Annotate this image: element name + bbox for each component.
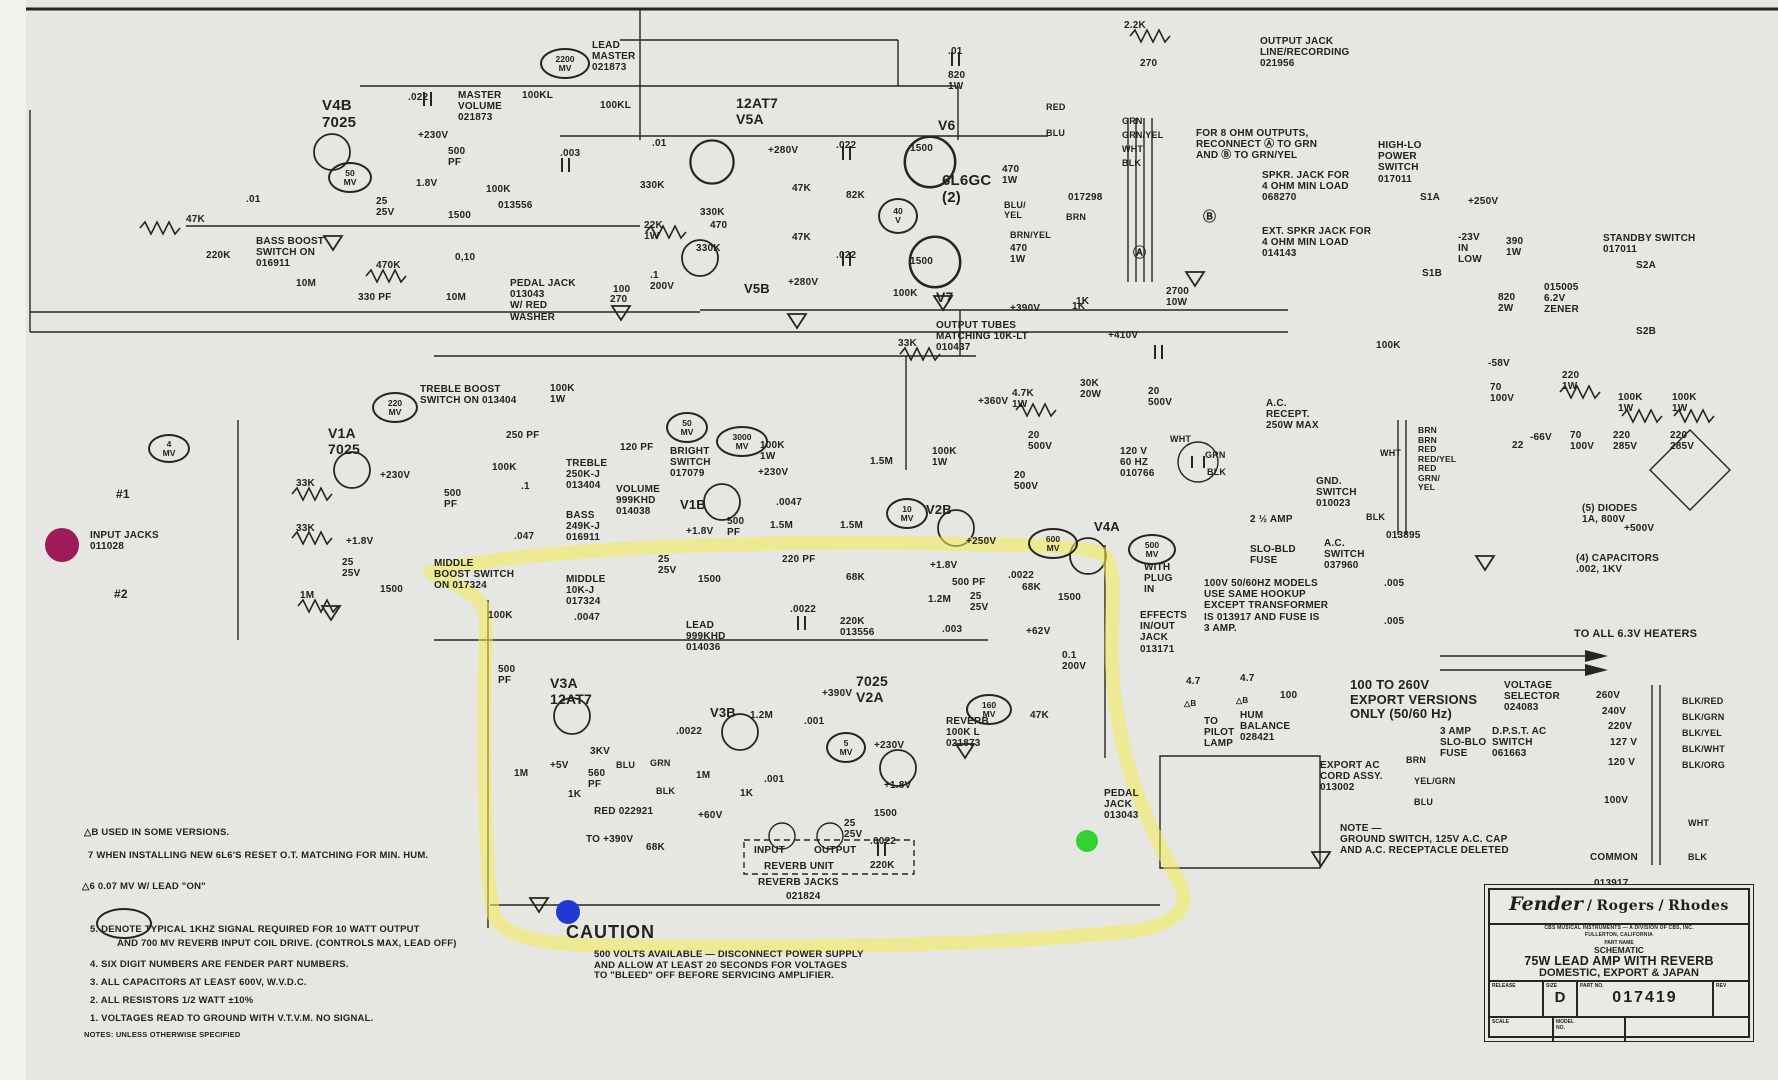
schematic-label: 220V	[1608, 721, 1632, 732]
fender-logo: Fender	[1509, 893, 1583, 915]
schematic-label: 1.2M	[928, 594, 951, 605]
schematic-label: 220K 013556	[840, 616, 875, 638]
schematic-label: BLK/WHT	[1682, 744, 1725, 754]
schematic-label: .005	[1384, 616, 1404, 627]
schematic-label: 013895	[1386, 530, 1421, 541]
schematic-label: 2 ½ AMP	[1250, 514, 1293, 525]
schematic-label: SPKR. JACK FOR 4 OHM MIN LOAD 068270	[1262, 170, 1349, 204]
schematic-label: 7025 V2A	[856, 674, 888, 705]
schematic-label: 33K	[296, 478, 315, 489]
schematic-label: 470 1W	[1002, 164, 1019, 186]
schematic-label: SLO-BLD FUSE	[1250, 544, 1296, 566]
schematic-label: 120 PF	[620, 442, 653, 453]
schematic-label: V4A	[1094, 520, 1120, 535]
schematic-label: 330K	[640, 180, 665, 191]
schematic-label: .0022	[790, 604, 816, 615]
mv-callout: 5 MV	[826, 732, 866, 763]
schematic-label: BRN BRN RED RED/YEL RED GRN/ YEL	[1418, 426, 1456, 493]
schematic-label: 220K	[206, 250, 231, 261]
mv-callout: 3000 MV	[716, 426, 768, 457]
schematic-label: S2B	[1636, 326, 1656, 337]
schematic-label: STANDBY SWITCH 017011	[1603, 233, 1695, 255]
maroon-dot-marker	[45, 528, 79, 562]
schematic-label: 47K	[792, 232, 811, 243]
schematic-label: 470K	[376, 260, 401, 271]
schematic-label: 47K	[1030, 710, 1049, 721]
schematic-label: BRN	[1066, 212, 1086, 222]
schematic-label: 100	[1280, 690, 1297, 701]
schematic-label: 500 PF	[952, 577, 985, 588]
schematic-label: TREBLE BOOST SWITCH ON 013404	[420, 384, 517, 406]
schematic-label: +390V	[1010, 303, 1040, 314]
schematic-label: +1.8V	[346, 536, 373, 547]
mv-callout: 10 MV	[886, 498, 928, 529]
schematic-label: 0.1 200V	[1062, 650, 1086, 672]
note-line: △B USED IN SOME VERSIONS.	[84, 828, 229, 839]
mv-callout: 50 MV	[328, 162, 372, 193]
schematic-label: 33K	[898, 338, 917, 349]
schematic-label: 260V	[1596, 690, 1620, 701]
schematic-label: 12AT7 V5A	[736, 96, 778, 127]
schematic-label: 120 V	[1608, 757, 1635, 768]
schematic-label: .0047	[574, 612, 600, 623]
schematic-label: MIDDLE 10K-J 017324	[566, 574, 606, 608]
schematic-label: FOR 8 OHM OUTPUTS, RECONNECT Ⓐ TO GRN AN…	[1196, 128, 1317, 162]
schematic-label: .1 200V	[650, 270, 674, 292]
schematic-label: #2	[114, 588, 128, 601]
schematic-label: A.C. SWITCH 037960	[1324, 538, 1365, 572]
schematic-label: PEDAL JACK 013043	[1104, 788, 1139, 822]
schematic-label: +410V	[1108, 330, 1138, 341]
schematic-label: 820 1W	[948, 70, 965, 92]
note-line: 3. ALL CAPACITORS AT LEAST 600V, W.V.D.C…	[90, 978, 307, 989]
schematic-label: +230V	[380, 470, 410, 481]
schematic-label: MIDDLE BOOST SWITCH ON 017324	[434, 558, 514, 592]
schematic-label: 68K	[646, 842, 665, 853]
schematic-label: VOLTAGE SELECTOR 024083	[1504, 680, 1560, 714]
schematic-label: BLK	[656, 786, 675, 796]
schematic-label: 013556	[498, 200, 533, 211]
schematic-label: +280V	[788, 277, 818, 288]
schematic-label: 127 V	[1610, 737, 1637, 748]
schematic-label: 25 25V	[376, 196, 394, 218]
schematic-label: 220 285V	[1670, 430, 1694, 452]
schematic-label: V5B	[744, 282, 770, 297]
schematic-label: EFFECTS IN/OUT JACK 013171	[1140, 610, 1187, 655]
schematic-label: INPUT	[754, 845, 785, 856]
note-line: 7 WHEN INSTALLING NEW 6L6'S RESET O.T. M…	[88, 851, 428, 862]
schematic-label: -66V	[1530, 432, 1552, 443]
schematic-label: Ⓐ	[1133, 246, 1146, 261]
schematic-label: 270	[1140, 58, 1157, 69]
schematic-label: +60V	[698, 810, 722, 821]
schematic-label: +280V	[768, 145, 798, 156]
schematic-label: PEDAL JACK 013043 W/ RED WASHER	[510, 278, 576, 323]
schematic-label: 470 1W	[1010, 243, 1027, 265]
schematic-label: 25 25V	[844, 818, 862, 840]
schematic-label: .003	[942, 624, 962, 635]
rev-label: REV	[1716, 983, 1746, 989]
schematic-label: 1500	[874, 808, 897, 819]
schematic-label: LEAD MASTER 021873	[592, 40, 635, 74]
schematic-label: 70 100V	[1490, 382, 1514, 404]
schematic-label: +1.8V	[686, 526, 713, 537]
schematic-sheet: V4B 7025.022MASTER VOLUME 021873100KLLEA…	[0, 0, 1778, 1080]
schematic-label: WHT	[1122, 144, 1143, 154]
schematic-label: +1.8V	[930, 560, 957, 571]
schematic-label: 68K	[846, 572, 865, 583]
schematic-label: 4.7	[1186, 676, 1201, 687]
schematic-label: 1.5M	[840, 520, 863, 531]
schematic-label: 820 2W	[1498, 292, 1515, 314]
schematic-label: HUM BALANCE 028421	[1240, 710, 1290, 744]
schematic-label: TO PILOT LAMP	[1204, 716, 1234, 750]
schematic-label: 390 1W	[1506, 236, 1523, 258]
schematic-label: -23V IN LOW	[1458, 232, 1482, 266]
schematic-label: REVERB UNIT	[764, 861, 834, 872]
schematic-label: .0022	[676, 726, 702, 737]
schematic-label: +230V	[418, 130, 448, 141]
schematic-label: BLK	[1122, 158, 1141, 168]
schematic-label: 100KL	[522, 90, 553, 101]
schematic-label: .001	[804, 716, 824, 727]
schematic-label: VOLUME 999KHD 014038	[616, 484, 660, 518]
schematic-label: .022	[408, 92, 428, 103]
schematic-label: YEL/GRN	[1414, 776, 1455, 786]
schematic-label: 100 TO 260V EXPORT VERSIONS ONLY (50/60 …	[1350, 678, 1477, 722]
schematic-label: 6L6GC (2)	[942, 173, 991, 207]
schematic-label: GRN	[1122, 116, 1143, 126]
schematic-label: GRN	[650, 758, 671, 768]
schematic-label: +250V	[1468, 196, 1498, 207]
schematic-label: BRN	[1406, 755, 1426, 765]
schematic-label: 20 500V	[1148, 386, 1172, 408]
schematic-label: 017298	[1068, 192, 1103, 203]
schematic-label: WHT	[1688, 818, 1709, 828]
schematic-label: 1K	[1076, 296, 1089, 307]
schematic-label: 021824	[786, 891, 821, 902]
schematic-label: RED 022921	[594, 806, 653, 817]
schematic-label: 47K	[792, 183, 811, 194]
schematic-label: 220 1W	[1562, 370, 1579, 392]
schematic-label: GRN/YEL	[1122, 130, 1163, 140]
schematic-label: V3A 12AT7	[550, 676, 592, 707]
schematic-label: #1	[116, 488, 130, 501]
note-line: 1. VOLTAGES READ TO GROUND WITH V.T.V.M.…	[90, 1014, 373, 1025]
schematic-label: 70 100V	[1570, 430, 1594, 452]
schematic-label: 82K	[846, 190, 865, 201]
mv-callout: 40 V	[878, 198, 918, 234]
schematic-label: 1500	[910, 143, 933, 154]
schematic-label: EXPORT AC CORD ASSY. 013002	[1320, 760, 1383, 794]
schematic-label: REVERB JACKS	[758, 877, 839, 888]
schematic-label: 1.2M	[750, 710, 773, 721]
schematic-label: GRN	[1205, 450, 1226, 460]
schematic-label: 10M	[446, 292, 466, 303]
schematic-label: 1500	[910, 256, 933, 267]
schematic-label: V1B	[680, 498, 706, 513]
schematic-label: WHT	[1170, 434, 1191, 444]
schematic-label: 500 PF	[498, 664, 515, 686]
schematic-label: 2.2K	[1124, 20, 1146, 31]
schematic-label: BLU	[1046, 128, 1065, 138]
schematic-label: 1.8V	[416, 178, 437, 189]
schematic-label: 560 PF	[588, 768, 605, 790]
schematic-label: TO +390V	[586, 834, 633, 845]
schematic-label: Ⓑ	[1203, 210, 1216, 225]
schematic-label: 500 PF	[444, 488, 461, 510]
schematic-label: .1	[521, 481, 530, 492]
schematic-title-line2: DOMESTIC, EXPORT & JAPAN	[1490, 968, 1748, 980]
schematic-label: BLU/ YEL	[1004, 200, 1026, 220]
schematic-label: HIGH-LO POWER SWITCH 017011	[1378, 140, 1422, 185]
schematic-label: △B	[1184, 700, 1196, 709]
schematic-label: 100K	[1376, 340, 1401, 351]
schematic-label: 1500	[448, 210, 471, 221]
schematic-label: TREBLE 250K-J 013404	[566, 458, 607, 492]
brand-separator: /	[1587, 898, 1593, 914]
green-dot-marker	[1076, 830, 1098, 852]
blue-dot-marker	[556, 900, 580, 924]
schematic-label: .0022	[870, 836, 896, 847]
schematic-label: D.P.S.T. AC SWITCH 061663	[1492, 726, 1546, 760]
scale-label: SCALE	[1492, 1019, 1550, 1025]
schematic-label: +390V	[822, 688, 852, 699]
schematic-label: TO ALL 6.3V HEATERS	[1574, 628, 1697, 640]
schematic-label: 100K 1W	[550, 383, 575, 405]
schematic-label: V1A 7025	[328, 426, 360, 457]
schematic-label: 25 25V	[658, 554, 676, 576]
schematic-label: 1M	[300, 590, 314, 601]
schematic-label: 1M	[696, 770, 710, 781]
schematic-label: +250V	[966, 536, 996, 547]
mv-callout: 600 MV	[1028, 528, 1078, 559]
schematic-label: .001	[764, 774, 784, 785]
schematic-label: 33K	[296, 523, 315, 534]
schematic-label: 25 25V	[970, 591, 988, 613]
schematic-label: BRN/YEL	[1010, 230, 1051, 240]
schematic-label: GND. SWITCH 010023	[1316, 476, 1357, 510]
schematic-label: WHT	[1380, 448, 1401, 458]
schematic-label: 220 285V	[1613, 430, 1637, 452]
schematic-label: S2A	[1636, 260, 1656, 271]
schematic-label: 270	[610, 294, 627, 305]
schematic-label: BASS 249K-J 016911	[566, 510, 600, 544]
schematic-label: .022	[836, 140, 856, 151]
mv-callout: 50 MV	[666, 412, 708, 443]
schematic-label: 1500	[698, 574, 721, 585]
note-line: △6 0.07 MV W/ LEAD "ON"	[82, 882, 206, 893]
schematic-label: V7	[936, 290, 954, 306]
schematic-label: 220 PF	[782, 554, 815, 565]
schematic-label: 330 PF	[358, 292, 391, 303]
schematic-label: △B	[1236, 697, 1248, 706]
schematic-label: 330K	[696, 243, 721, 254]
note-line: 5. DENOTE TYPICAL 1KHZ SIGNAL REQUIRED F…	[90, 925, 420, 936]
schematic-label: NOTE — GROUND SWITCH, 125V A.C. CAP AND …	[1340, 823, 1509, 857]
schematic-label: OUTPUT	[814, 845, 856, 856]
schematic-label: 500 PF	[727, 516, 744, 538]
schematic-label: EXT. SPKR JACK FOR 4 OHM MIN LOAD 014143	[1262, 226, 1371, 260]
schematic-label: 100K 1W	[932, 446, 957, 468]
brand-logos: Fender / Rogers / Rhodes	[1490, 890, 1748, 925]
note-line: AND 700 MV REVERB INPUT COIL DRIVE. (CON…	[117, 939, 457, 950]
schematic-label: BLK	[1688, 852, 1707, 862]
schematic-label: WITH PLUG IN	[1144, 562, 1173, 596]
schematic-label: 100K	[488, 610, 513, 621]
schematic-label: 3KV	[590, 746, 610, 757]
mv-callout: 4 MV	[148, 434, 190, 463]
schematic-label: MASTER VOLUME 021873	[458, 90, 502, 124]
brand-separator: /	[1658, 898, 1664, 914]
schematic-label: 68K	[1022, 582, 1041, 593]
schematic-label: +230V	[758, 467, 788, 478]
schematic-label: 100K 1W	[1672, 392, 1697, 414]
schematic-label: 240V	[1602, 706, 1626, 717]
schematic-label: 100K 1W	[1618, 392, 1643, 414]
mv-callout: 160 MV	[966, 694, 1012, 725]
schematic-label: 1.5M	[870, 456, 893, 467]
schematic-label: 25 25V	[342, 557, 360, 579]
schematic-label: BLK/RED	[1682, 696, 1723, 706]
schematic-label: S1B	[1422, 268, 1442, 279]
schematic-label: .01	[652, 138, 667, 149]
schematic-label: .003	[560, 148, 580, 159]
rhodes-logo: Rhodes	[1668, 898, 1729, 914]
schematic-label: 330K	[700, 207, 725, 218]
schematic-label: 3 AMP SLO-BLO FUSE	[1440, 726, 1486, 760]
schematic-label: V3B	[710, 706, 736, 721]
schematic-label: .01	[948, 46, 963, 57]
schematic-label: .047	[514, 531, 534, 542]
schematic-label: 015005 6.2V ZENER	[1544, 282, 1579, 316]
schematic-label: BLK	[1207, 467, 1226, 477]
schematic-label: V2B	[926, 503, 952, 518]
schematic-label: 20 500V	[1028, 430, 1052, 452]
schematic-label: 22	[1512, 440, 1524, 451]
mv-callout: 2200 MV	[540, 48, 590, 79]
schematic-label: BLK/YEL	[1682, 728, 1722, 738]
schematic-label: 1500	[380, 584, 403, 595]
schematic-label: 10M	[296, 278, 316, 289]
schematic-label: 2700 10W	[1166, 286, 1189, 308]
schematic-label: .0022	[1008, 570, 1034, 581]
schematic-label: (4) CAPACITORS .002, 1KV	[1576, 553, 1659, 575]
schematic-label: V6	[938, 118, 956, 134]
schematic-label: RED	[1046, 102, 1066, 112]
schematic-label: BLK	[1366, 512, 1385, 522]
schematic-label: +500V	[1624, 523, 1654, 534]
schematic-label: -58V	[1488, 358, 1510, 369]
schematic-label: INPUT JACKS 011028	[90, 530, 159, 552]
schematic-label: 220K	[870, 860, 895, 871]
schematic-label: 120 V 60 HZ 010766	[1120, 446, 1155, 480]
schematic-label: BLU	[1414, 797, 1433, 807]
schematic-label: 1K	[568, 789, 581, 800]
mv-callout: 500 MV	[1128, 534, 1176, 565]
schematic-label: 20 500V	[1014, 470, 1038, 492]
schematic-label: OUTPUT JACK LINE/RECORDING 021956	[1260, 36, 1349, 70]
schematic-label: 100KL	[600, 100, 631, 111]
note-line: 2. ALL RESISTORS 1/2 WATT ±10%	[90, 996, 253, 1007]
schematic-label: 1K	[740, 788, 753, 799]
rogers-logo: Rogers	[1597, 898, 1655, 914]
schematic-label: .0047	[776, 497, 802, 508]
schematic-label: A.C. RECEPT. 250W MAX	[1266, 398, 1319, 432]
schematic-label: V4B 7025	[322, 98, 356, 132]
schematic-label: BRIGHT SWITCH 017079	[670, 446, 711, 480]
schematic-label: 500 PF	[448, 146, 465, 168]
schematic-label: BASS BOOST SWITCH ON 016911	[256, 236, 324, 270]
schematic-label: .01	[246, 194, 261, 205]
schematic-label: 100K	[486, 184, 511, 195]
schematic-label: +5V	[550, 760, 569, 771]
schematic-label: 250 PF	[506, 430, 539, 441]
mv-callout: 220 MV	[372, 392, 418, 423]
title-block: Fender / Rogers / Rhodes CBS MUSICAL INS…	[1488, 888, 1750, 1038]
schematic-label: OUTPUT TUBES MATCHING 10K-LT 010437	[936, 320, 1028, 354]
schematic-label: 4.7	[1240, 673, 1255, 684]
schematic-label: .022	[836, 250, 856, 261]
schematic-label: BLK/GRN	[1682, 712, 1724, 722]
part-no-value: 017419	[1580, 989, 1710, 1007]
schematic-label: BLU	[616, 760, 635, 770]
schematic-label: 100K	[492, 462, 517, 473]
model-label: MODEL NO.	[1556, 1019, 1622, 1031]
schematic-label: 100K	[893, 288, 918, 299]
schematic-label: +62V	[1026, 626, 1050, 637]
note-line: 4. SIX DIGIT NUMBERS ARE FENDER PART NUM…	[90, 960, 349, 971]
schematic-label: 470	[710, 220, 727, 231]
schematic-label: COMMON	[1590, 852, 1638, 863]
schematic-label: 4.7K 1W	[1012, 388, 1034, 410]
schematic-label: LEAD 999KHD 014036	[686, 620, 726, 654]
schematic-label: 0,10	[455, 252, 475, 263]
schematic-label: 47K	[186, 214, 205, 225]
release-label: RELEASE	[1492, 983, 1540, 989]
schematic-label: S1A	[1420, 192, 1440, 203]
schematic-label: BLK/ORG	[1682, 760, 1725, 770]
schematic-label: 100V	[1604, 795, 1628, 806]
caution-title: CAUTION	[566, 922, 655, 942]
schematic-label: 100V 50/60HZ MODELS USE SAME HOOKUP EXCE…	[1204, 578, 1328, 634]
schematic-label: +230V	[874, 740, 904, 751]
schematic-label: 1500	[1058, 592, 1081, 603]
schematic-label: +360V	[978, 396, 1008, 407]
schematic-label: +1.8V	[884, 780, 911, 791]
company-line2: FULLERTON, CALIFORNIA	[1490, 932, 1748, 939]
schematic-label: .005	[1384, 578, 1404, 589]
size-value: D	[1546, 989, 1574, 1006]
caution-text: 500 VOLTS AVAILABLE — DISCONNECT POWER S…	[594, 950, 864, 982]
schematic-label: 30K 20W	[1080, 378, 1101, 400]
schematic-label: 1M	[514, 768, 528, 779]
schematic-label: 1.5M	[770, 520, 793, 531]
schematic-label: 22K 1W	[644, 220, 663, 242]
note-line: NOTES: UNLESS OTHERWISE SPECIFIED	[84, 1031, 240, 1039]
